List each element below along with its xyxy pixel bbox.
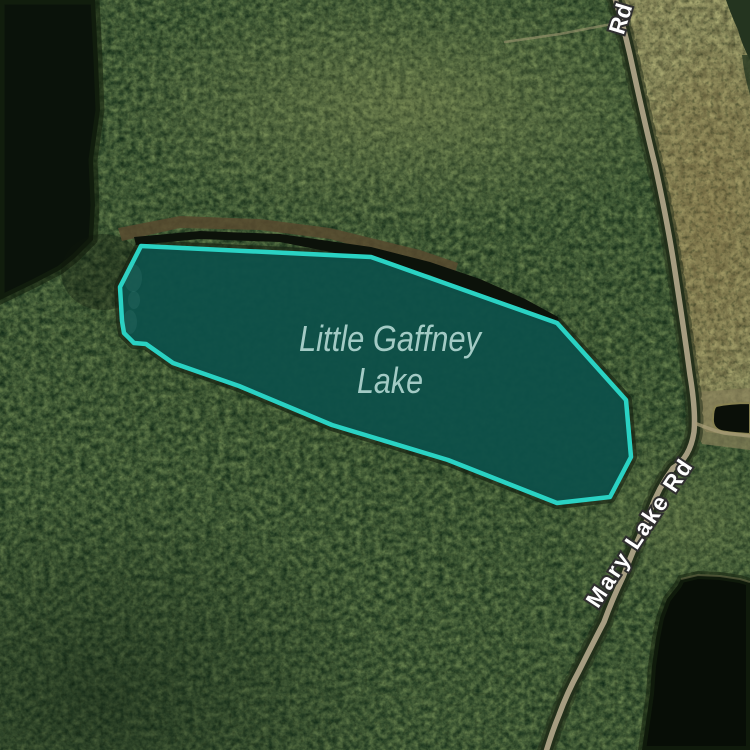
svg-text:Little Gaffney: Little Gaffney — [299, 318, 483, 359]
svg-text:Lake: Lake — [357, 360, 423, 401]
